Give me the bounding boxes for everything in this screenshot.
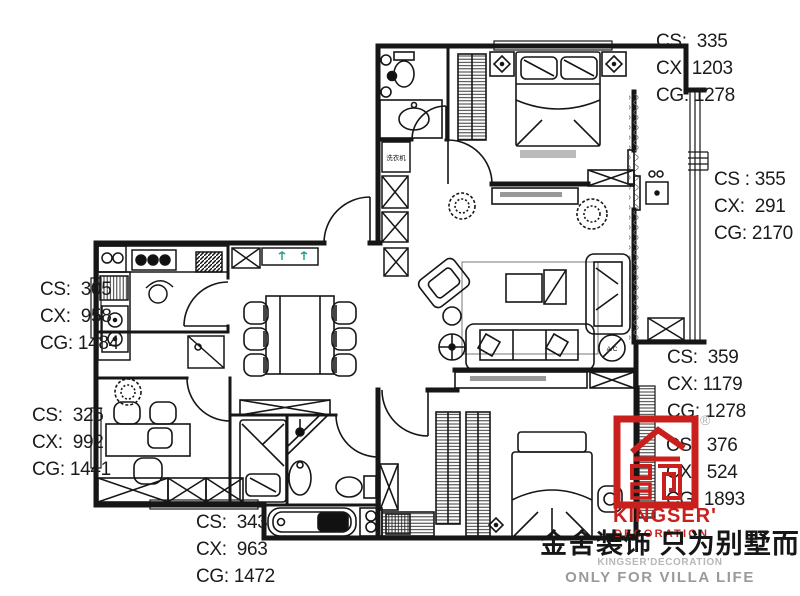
entry-area [232, 248, 318, 268]
hood-hatched [196, 252, 222, 272]
registered-trademark: ® [700, 412, 710, 428]
shoe-cabinet-x [232, 248, 260, 268]
floor-plan-page: { "plan_texts": { "washing_machine": "洗衣… [0, 0, 800, 596]
desk-chair [150, 402, 176, 424]
dim-line: CS: 305 [40, 276, 119, 303]
dining-chairs-right [332, 302, 356, 376]
dining-chairs-left [244, 302, 268, 376]
study-door [187, 378, 230, 421]
toilet [394, 61, 414, 87]
doors [184, 106, 640, 457]
dim-line: CX: 963 [196, 536, 275, 563]
small-bedroom [240, 420, 286, 502]
dim-label-top-right: CS: 335 CX: 1203 CG: 1278 [656, 28, 735, 109]
dim-line: CS: 325 [32, 402, 111, 429]
storage-cabinet-x [382, 176, 408, 276]
soap-dish [381, 87, 391, 97]
faucet-dot [388, 72, 397, 81]
desk-chair [134, 458, 162, 484]
toilet [336, 476, 376, 498]
burner [148, 255, 158, 265]
living-room: A/C [416, 188, 630, 370]
dim-line: CX: 992 [32, 429, 111, 456]
bed-bench [520, 150, 576, 158]
tv-board [455, 372, 587, 388]
master-bathroom [380, 52, 442, 138]
dim-line: CS: 343 [196, 509, 275, 536]
nightstand-left [490, 52, 514, 76]
tv-cabinet [492, 188, 578, 204]
kingser-logo-emblem [612, 414, 702, 512]
single-bed [240, 420, 286, 502]
balcony-glazing [690, 92, 700, 342]
dim-line: CS : 355 [714, 166, 793, 193]
nightstand-right [602, 52, 626, 76]
basin-tap [412, 103, 417, 108]
entry-bench [262, 248, 318, 265]
wardrobe-striped [458, 54, 486, 140]
bedroom2-door [382, 390, 428, 436]
burner [160, 255, 170, 265]
plant-large [577, 199, 607, 229]
ac-unit-symbol: A/C [599, 335, 625, 361]
coat-hook [301, 252, 307, 260]
corner-cabinet-x [380, 464, 398, 510]
washing-machine-label: 洗衣机 [386, 153, 406, 162]
dim-line: CG: 1472 [196, 563, 275, 590]
tv-cabinet-x [590, 372, 634, 388]
master-top-window [494, 41, 612, 50]
soap-dish [381, 55, 391, 65]
side-table [443, 307, 461, 325]
ac-platform-sill [688, 152, 708, 170]
corridor-cabinet-x [240, 400, 330, 415]
study-wardrobe-x [98, 478, 243, 502]
chaise-sofa [586, 254, 630, 334]
plant [449, 193, 475, 219]
dim-label-right-upper: CS : 355 CX: 291 CG: 2170 [714, 166, 793, 247]
kitchen-stool [146, 281, 173, 303]
dim-line: CS: 359 [667, 344, 746, 371]
dim-label-left-upper: CS: 305 CX: 958 CG: 1484 [40, 276, 119, 357]
desk-monitor [148, 428, 172, 448]
armchair [416, 256, 472, 310]
dim-line: CX: 1179 [667, 371, 746, 398]
coffee-table [506, 270, 566, 304]
bedroom2 [380, 372, 634, 538]
brand-slogan-english-large: ONLY FOR VILLA LIFE [545, 569, 775, 586]
floor-lamp [439, 334, 465, 360]
dim-label-bottom: CS: 343 CX: 963 CG: 1472 [196, 509, 275, 590]
floor-lamp-diamond [489, 518, 503, 532]
dining-table [266, 296, 334, 374]
fridge [188, 336, 224, 368]
coat-hook [279, 252, 285, 260]
dim-line: CX: 1203 [656, 55, 735, 82]
ac-label: A/C [607, 346, 618, 353]
burner [136, 255, 146, 265]
plant [115, 379, 141, 405]
master-cabinet-x [588, 170, 634, 186]
kitchen-door [184, 282, 228, 326]
balcony [646, 171, 684, 340]
master-bath-door [412, 106, 446, 140]
dim-line: CX: 958 [40, 303, 119, 330]
dining-room [240, 296, 356, 415]
bathtub [268, 508, 356, 536]
main-sofa [466, 324, 594, 370]
hallway: 洗衣机 [382, 142, 410, 276]
dim-line: CG: 1441 [32, 456, 111, 483]
brand-slogan-chinese: 金舍装饰 只为别墅而生。 [540, 522, 800, 561]
dim-line: CG: 2170 [714, 220, 793, 247]
master-bedroom [449, 52, 634, 229]
study-room [98, 379, 243, 502]
dim-line: CG: 1278 [656, 82, 735, 109]
brand-slogan-english-small: KINGSER'DECORATION [555, 557, 765, 568]
dim-line: CS: 335 [656, 28, 735, 55]
dim-label-left-lower: CS: 325 CX: 992 CG: 1441 [32, 402, 111, 483]
balcony-cabinet-x [648, 318, 684, 340]
shower-corner [288, 415, 328, 454]
wash-basin [289, 461, 311, 495]
double-bed [516, 52, 600, 146]
dim-line: CG: 1484 [40, 330, 119, 357]
dim-line: CX: 291 [714, 193, 793, 220]
master-bedroom-door [448, 140, 492, 184]
entry-door [324, 197, 370, 243]
bathroom2-door [336, 415, 378, 457]
toilet-tank [394, 52, 414, 60]
